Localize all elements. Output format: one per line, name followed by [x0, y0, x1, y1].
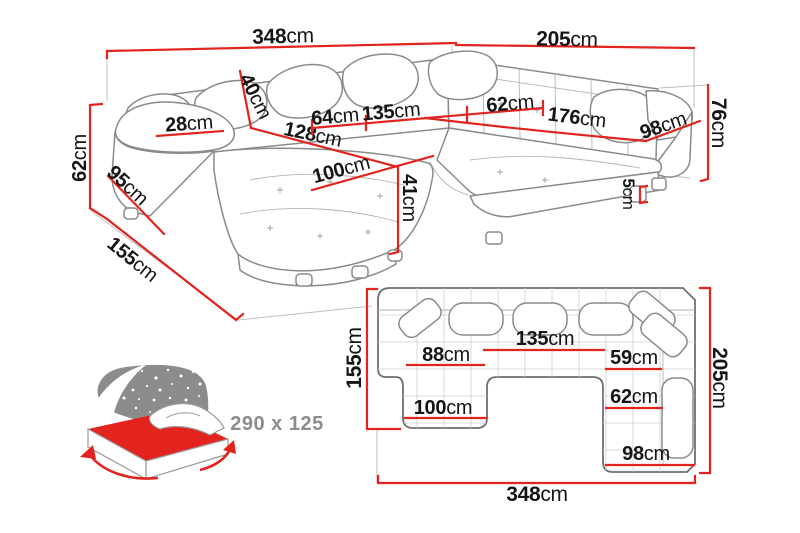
perspective-view: 348cm 205cm 62cm 155cm 95cm 28cm 40cm 1 [69, 24, 730, 320]
dim-label-205: 205cm [536, 27, 598, 51]
dim-label-348: 348cm [252, 24, 314, 49]
plan-view: 155cm 88cm 135cm 59cm 100cm 62cm 98cm 3 [343, 288, 731, 506]
dim-label-41: 41cm [398, 174, 420, 222]
plan-label-205: 205cm [708, 347, 731, 409]
dim-total-width-348: 348cm [107, 24, 456, 58]
dim-label-62-left: 62cm [69, 134, 91, 182]
dim-label-28: 28cm [165, 111, 214, 136]
plan-label-88: 88cm [422, 344, 470, 366]
plan-label-100: 100cm [414, 397, 473, 419]
dim-right-width-205: 205cm [456, 27, 694, 51]
plan-dim-total-width-348: 348cm [378, 476, 695, 506]
plan-label-348: 348cm [506, 483, 568, 506]
sofa-sketch [112, 51, 692, 286]
plan-label-62: 62cm [610, 386, 658, 408]
plan-dim-59: 59cm [606, 347, 661, 369]
dim-label-64: 64cm [310, 104, 359, 130]
plan-label-59: 59cm [610, 347, 658, 369]
dim-arm-height-62: 62cm [69, 104, 102, 208]
furniture-dimension-diagram: 348cm 205cm 62cm 155cm 95cm 28cm 40cm 1 [0, 0, 800, 533]
plan-dim-right-depth-205: 205cm [700, 288, 731, 473]
dim-label-62-corner: 62cm [485, 91, 534, 117]
sofa-bed-sleeping-area-icon: 290 x 125 [80, 364, 324, 479]
plan-label-155: 155cm [343, 327, 366, 389]
plan-label-135: 135cm [516, 328, 575, 350]
dim-label-76: 76cm [707, 98, 730, 148]
plan-dim-62: 62cm [606, 386, 662, 408]
dim-label-5: 5cm [619, 178, 638, 209]
dim-back-height-76: 76cm [701, 85, 730, 181]
sleeping-size-label: 290 x 125 [230, 413, 323, 435]
dim-chaise-depth-155: 155cm [90, 208, 243, 320]
plan-label-98: 98cm [622, 443, 670, 465]
